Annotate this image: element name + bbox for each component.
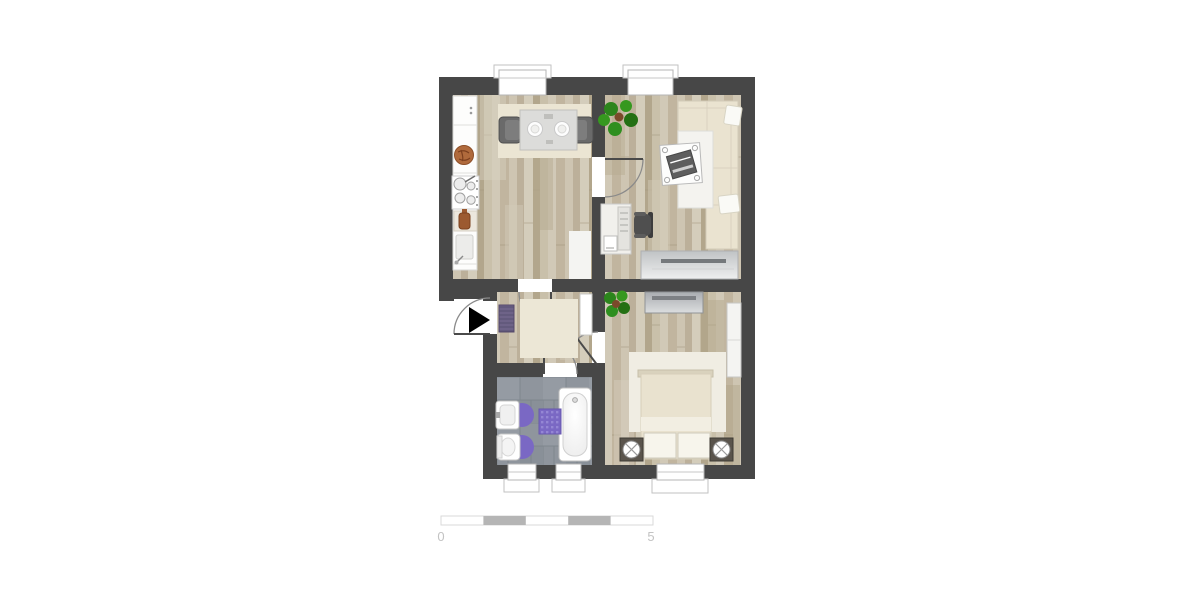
sofa-pillow: [718, 194, 740, 214]
kitchen-window: [494, 65, 551, 95]
wall-bath-top1: [497, 363, 543, 377]
dining-chair-left: [499, 117, 521, 143]
wardrobe: [727, 303, 741, 377]
washbasin: [496, 401, 534, 429]
wall-left-upper: [439, 77, 453, 301]
bread-bowl: [455, 146, 474, 165]
wall-hall-left: [483, 334, 497, 465]
nightstand-left: [620, 438, 643, 461]
bathroom-window-1: [504, 464, 539, 492]
bathtub: [559, 388, 591, 461]
hallway-rug: [520, 299, 578, 358]
floor-plan-canvas: 0 5: [0, 0, 1200, 600]
sideboard-handle: [661, 259, 726, 263]
scale-end-label: 5: [647, 529, 654, 544]
laptop: [604, 236, 617, 251]
doormat: [499, 305, 514, 332]
wall-mid-v3: [592, 366, 605, 465]
floor-plan-page: 0 5: [0, 0, 1200, 600]
sideboard: [641, 251, 738, 279]
wall-top: [439, 77, 755, 95]
bed-pillow: [678, 433, 710, 458]
bathroom-window-2: [552, 464, 585, 492]
dresser-handle: [652, 296, 696, 300]
entrance-door: [454, 298, 490, 335]
toilet: [497, 434, 534, 460]
desk: [601, 204, 631, 254]
wall-mid-h1: [497, 279, 518, 292]
wall-right: [741, 77, 755, 479]
wall-mid-v1: [592, 95, 605, 157]
wall-mid-h2: [552, 279, 741, 292]
scale-start-label: 0: [437, 529, 444, 544]
kitchen-mat: [569, 231, 591, 279]
dresser: [645, 292, 703, 313]
scale-segment: [568, 516, 610, 525]
scale-segment: [483, 516, 525, 525]
bedroom-window: [652, 464, 708, 493]
bath-mat: [539, 409, 561, 434]
living-room-window: [623, 65, 678, 95]
scale-bar: 0 5: [437, 516, 654, 544]
decor-tray: [660, 143, 703, 186]
dining-table: [520, 110, 577, 150]
wall-bath-top2: [577, 363, 605, 377]
cutting-board: [454, 209, 477, 231]
bed-pillow: [644, 433, 676, 458]
office-chair: [634, 212, 653, 238]
nightstand-right: [710, 438, 733, 461]
double-bed: [638, 370, 713, 459]
stove: [452, 176, 479, 209]
hallway-shelf: [580, 294, 592, 335]
sofa-pillow: [724, 105, 743, 126]
